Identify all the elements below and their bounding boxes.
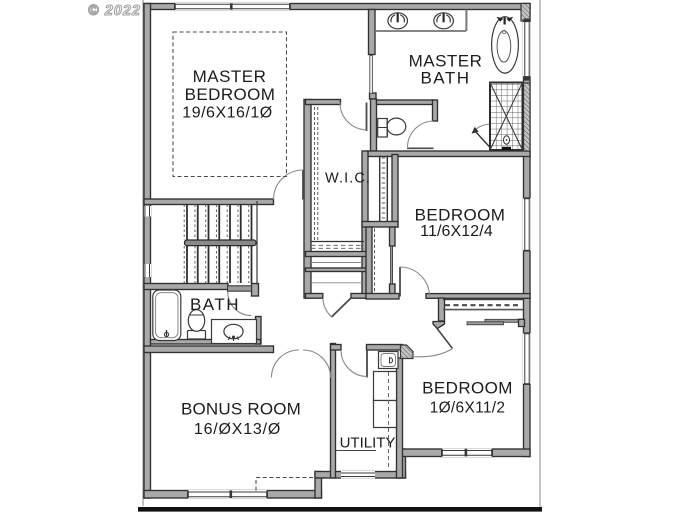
svg-text:BEDROOM: BEDROOM [185,85,276,104]
svg-text:BEDROOM: BEDROOM [415,206,506,225]
svg-text:BEDROOM: BEDROOM [422,379,513,398]
svg-text:11/6X12/4: 11/6X12/4 [420,223,493,240]
svg-text:UTILITY: UTILITY [340,435,396,452]
svg-text:16/ØX13/Ø: 16/ØX13/Ø [194,421,281,438]
svg-text:MASTER: MASTER [193,67,267,86]
svg-text:BATH: BATH [420,69,470,88]
svg-text:1Ø/6X11/2: 1Ø/6X11/2 [430,400,506,417]
svg-text:19/6X16/1Ø: 19/6X16/1Ø [182,105,272,122]
svg-text:© 2022: © 2022 [88,3,141,19]
svg-text:BATH: BATH [190,295,240,314]
svg-text:BONUS ROOM: BONUS ROOM [181,400,301,419]
svg-text:W.I.C.: W.I.C. [325,171,371,187]
